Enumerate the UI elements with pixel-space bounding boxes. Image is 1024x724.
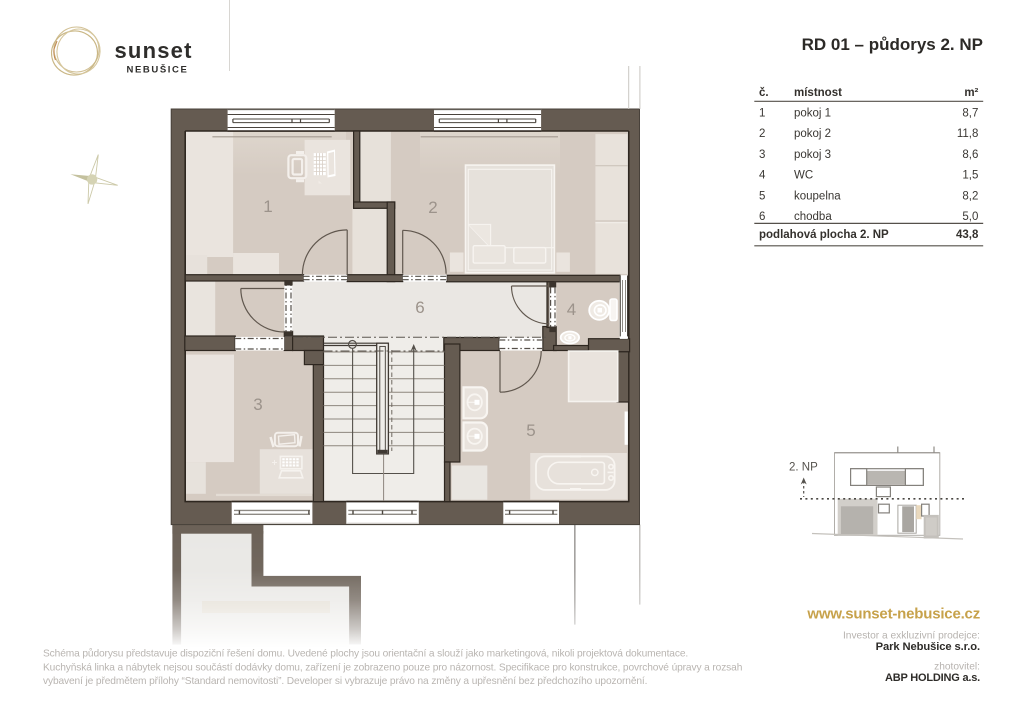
svg-text:8,6: 8,6 bbox=[962, 149, 978, 161]
svg-text:5: 5 bbox=[526, 421, 535, 440]
svg-text:5: 5 bbox=[759, 190, 765, 202]
svg-text:3: 3 bbox=[253, 395, 262, 414]
svg-text:WC: WC bbox=[794, 170, 813, 182]
svg-text:koupelna: koupelna bbox=[794, 190, 841, 202]
svg-text:8,2: 8,2 bbox=[962, 190, 978, 202]
svg-text:Investor a exkluzivní prodejce: Investor a exkluzivní prodejce: bbox=[843, 631, 980, 642]
svg-text:Park Nebušice s.r.o.: Park Nebušice s.r.o. bbox=[876, 641, 980, 653]
svg-text:6: 6 bbox=[759, 211, 765, 223]
svg-text:11,8: 11,8 bbox=[957, 128, 979, 140]
svg-text:1: 1 bbox=[263, 197, 272, 216]
svg-text:1,5: 1,5 bbox=[962, 170, 978, 182]
svg-text:Schéma půdorysu představuje di: Schéma půdorysu představuje dispoziční ř… bbox=[43, 648, 688, 660]
svg-text:místnost: místnost bbox=[794, 87, 842, 99]
svg-text:3: 3 bbox=[759, 149, 765, 161]
svg-text:pokoj 3: pokoj 3 bbox=[794, 149, 831, 161]
svg-text:NEBUŠICE: NEBUŠICE bbox=[127, 64, 189, 76]
svg-text:1: 1 bbox=[759, 108, 765, 120]
svg-text:43,8: 43,8 bbox=[956, 229, 979, 241]
svg-text:č.: č. bbox=[759, 87, 769, 99]
svg-text:2: 2 bbox=[759, 128, 765, 140]
svg-text:4: 4 bbox=[759, 170, 766, 182]
svg-text:m²: m² bbox=[964, 87, 978, 99]
svg-text:chodba: chodba bbox=[794, 211, 832, 223]
svg-text:pokoj 1: pokoj 1 bbox=[794, 108, 831, 120]
svg-text:2. NP: 2. NP bbox=[789, 462, 818, 474]
svg-text:8,7: 8,7 bbox=[962, 108, 978, 120]
svg-text:zhotovitel:: zhotovitel: bbox=[934, 662, 980, 673]
svg-text:vybavení je předmětem přílohy: vybavení je předmětem přílohy “Standard … bbox=[43, 676, 647, 687]
svg-text:sunset: sunset bbox=[115, 38, 193, 63]
svg-text:pokoj 2: pokoj 2 bbox=[794, 128, 831, 140]
svg-text:5,0: 5,0 bbox=[962, 211, 978, 223]
svg-text:Kuchyňská linka a nábytek nejs: Kuchyňská linka a nábytek nejsou součást… bbox=[43, 662, 742, 673]
svg-text:RD 01 – půdorys 2. NP: RD 01 – půdorys 2. NP bbox=[802, 35, 983, 54]
svg-text:podlahová plocha 2. NP: podlahová plocha 2. NP bbox=[759, 229, 889, 241]
svg-text:ABP HOLDING a.s.: ABP HOLDING a.s. bbox=[885, 672, 980, 684]
svg-text:4: 4 bbox=[567, 300, 576, 319]
svg-text:www.sunset-nebusice.cz: www.sunset-nebusice.cz bbox=[806, 606, 980, 623]
svg-text:6: 6 bbox=[415, 298, 424, 317]
svg-text:2: 2 bbox=[428, 198, 437, 217]
